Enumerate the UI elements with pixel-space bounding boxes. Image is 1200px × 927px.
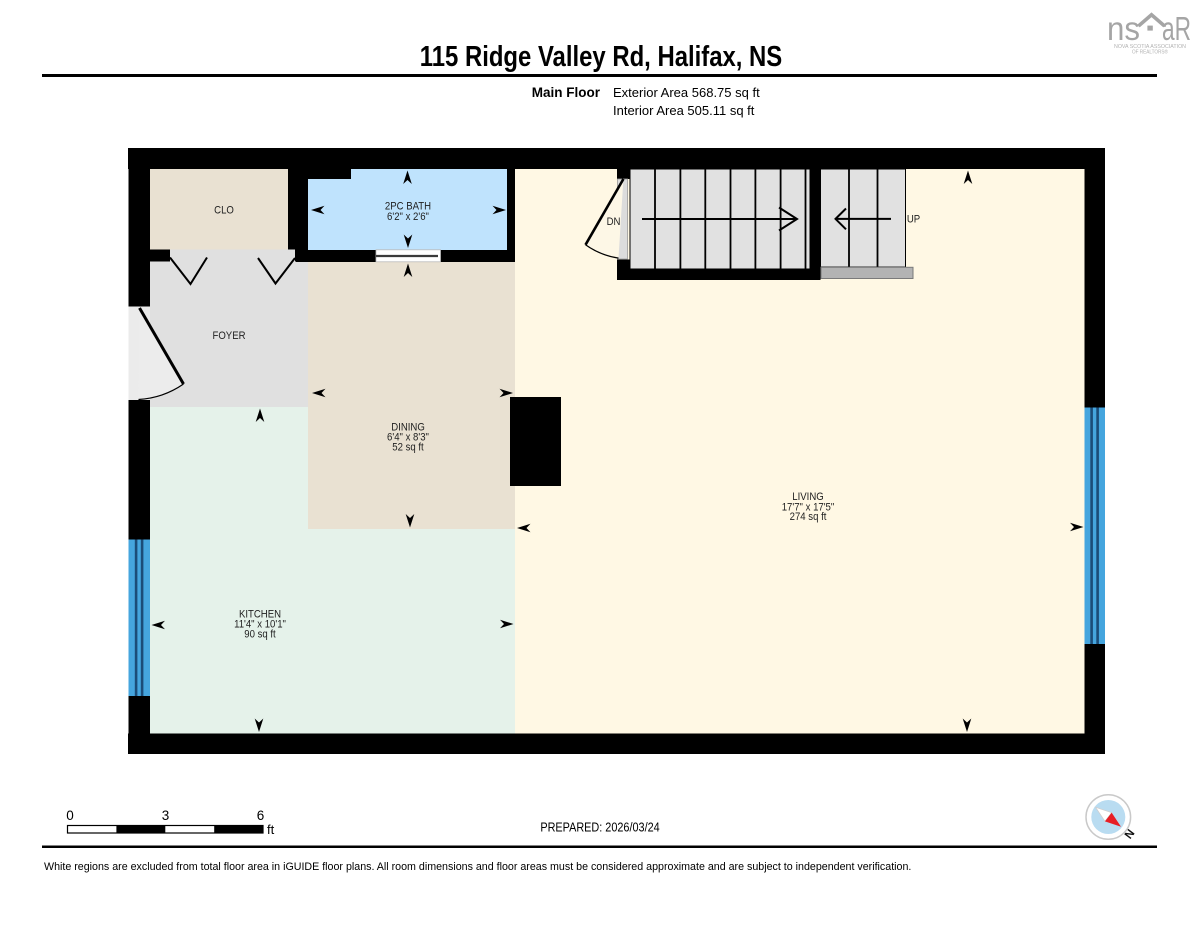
svg-text:52 sq ft: 52 sq ft — [392, 442, 424, 454]
svg-text:6'2" x 2'6": 6'2" x 2'6" — [387, 211, 429, 223]
svg-text:3: 3 — [162, 808, 170, 823]
svg-text:274 sq ft: 274 sq ft — [790, 511, 827, 523]
svg-text:White regions are excluded fro: White regions are excluded from total fl… — [44, 861, 911, 873]
svg-text:0: 0 — [66, 808, 74, 823]
svg-text:ft: ft — [267, 822, 275, 837]
svg-text:6: 6 — [257, 808, 265, 823]
svg-text:90 sq ft: 90 sq ft — [244, 629, 276, 641]
svg-text:FOYER: FOYER — [212, 330, 245, 342]
svg-text:CLO: CLO — [214, 205, 234, 217]
svg-text:UP: UP — [907, 214, 920, 226]
svg-text:PREPARED: 2026/03/24: PREPARED: 2026/03/24 — [540, 821, 660, 835]
svg-text:DN: DN — [607, 216, 621, 228]
